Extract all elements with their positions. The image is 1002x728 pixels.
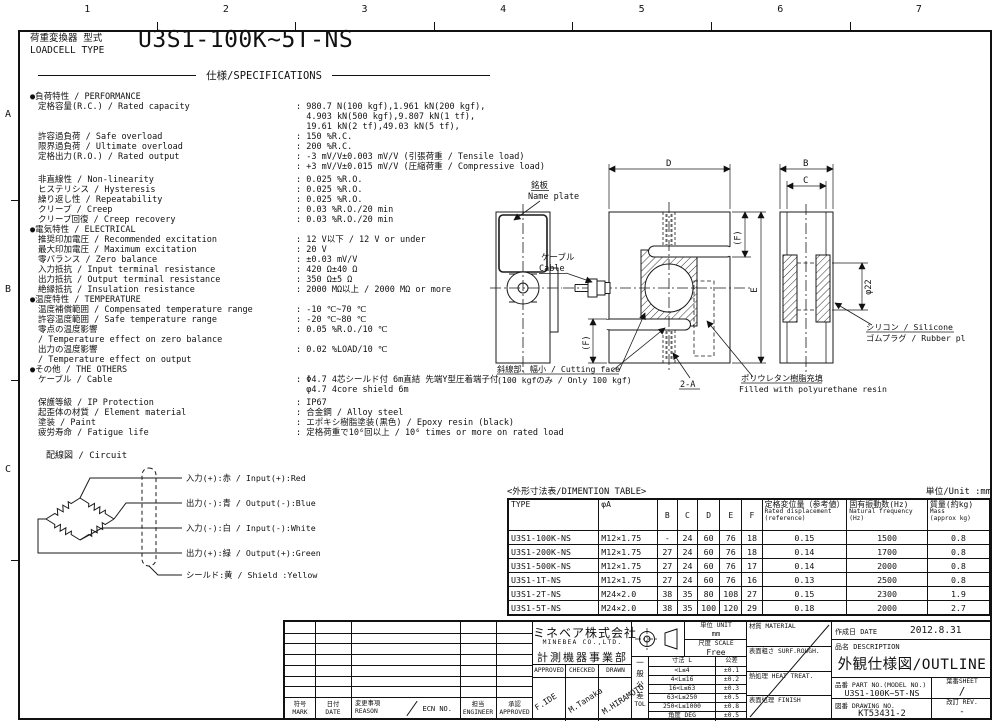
wire-output-plus: [38, 519, 182, 553]
date-row: 作成日 DATE 2012.8.31: [832, 622, 992, 640]
dim-table-cell: 0.8: [927, 545, 990, 559]
dim-table-row: U3S1-500K-NSM12×1.7527246076170.1420000.…: [508, 559, 990, 573]
specifications-heading: 仕様/SPECIFICATIONS: [38, 68, 490, 83]
dim-table-cell: 76: [720, 531, 742, 545]
spec-label: 保護等級 / IP Protection: [38, 398, 296, 408]
spec-row: 温度補償範囲 / Compensated temperature range: …: [30, 305, 502, 315]
revision-header-en: DATE: [325, 709, 340, 717]
revision-header-text: 変更事項REASON: [355, 700, 380, 716]
dim-table-header: D: [698, 499, 720, 531]
dim-table-cell: U3S1-5T-NS: [508, 601, 599, 616]
spec-label: 零バランス / Zero balance: [38, 255, 296, 265]
dim-label-f-bottom: (F): [582, 335, 592, 350]
tolerance-dim-range: 角度 DEG: [649, 712, 716, 721]
bridge-resistor: [46, 519, 80, 540]
cable-stub: [575, 279, 610, 297]
revision-header-cell: 変更事項REASONECN NO.: [351, 697, 460, 720]
material-block: 材質 MATERIAL表面粗さ SURF.ROUGH.熱処理 HEAT TREA…: [747, 622, 832, 720]
dim-table-cell: 60: [698, 573, 720, 587]
spec-label: 出力抵抗 / Output terminal resistance: [38, 275, 296, 285]
dim-table-cell: U3S1-1T-NS: [508, 573, 599, 587]
spec-row: / Temperature effect on zero balance: [30, 335, 502, 345]
spec-value: : IP67: [296, 398, 327, 408]
material-cell-label: 材質 MATERIAL: [749, 623, 796, 630]
spec-label: 許容温度範囲 / Safe temperature range: [38, 315, 296, 325]
cable-label-jp: ケーブル: [541, 252, 575, 263]
dim-table-cell: 27: [657, 559, 677, 573]
part-no-value: U3S1-100K~5T-NS: [832, 688, 932, 698]
spec-label: 温度補償範囲 / Compensated temperature range: [38, 305, 296, 315]
material-cell-label: 表面処理 FINISH: [749, 697, 801, 704]
cable-label-en: Cable: [539, 264, 565, 274]
bridge-resistor: [46, 498, 80, 519]
dim-table-cell: U3S1-500K-NS: [508, 559, 599, 573]
spec-row: ケーブル / Cable: Φ4.7 4芯シールド付 6m直結 先端Y型圧着端子…: [30, 375, 502, 385]
description-label: 品名 DESCRIPTION: [835, 642, 900, 652]
spec-row: 許容温度範囲 / Safe temperature range: -20 ℃~8…: [30, 315, 502, 325]
revision-header-jp: 承認: [508, 701, 521, 709]
dimension-table-caption: <外形寸法表/DIMENTION TABLE> 単位/Unit :mm: [507, 486, 991, 498]
cutting-face-note: (100 kgfのみ / Only 100 kgf): [497, 375, 632, 385]
material-cell: 熱処理 HEAT TREAT.: [747, 672, 832, 696]
ruler-tick: [572, 22, 573, 30]
spec-row: 疲労寿命 / Fatigue life: 定格荷重で10⁶回以上 / 10⁶ t…: [30, 428, 502, 438]
spec-label: ケーブル / Cable: [38, 375, 296, 385]
dim-table-row: U3S1-1T-NSM12×1.7527246076160.1325000.8: [508, 573, 990, 587]
dim-table-cell: 24: [677, 531, 697, 545]
spec-label: 推奨印加電圧 / Recommended excitation: [38, 235, 296, 245]
spec-row: 保護等級 / IP Protection: IP67: [30, 398, 502, 408]
signature-column: APPROVEDF.IDE: [533, 665, 566, 721]
drawing-no-cell: 図番 DRAWING NO. KT53431-2: [832, 699, 932, 720]
revision-header-text: 符号MARK: [285, 697, 315, 720]
dim-table-row: U3S1-100K-NSM12×1.75-246076180.1515000.8: [508, 531, 990, 545]
dim-table-cell: 0.14: [762, 545, 847, 559]
dim-table-cell: 1700: [847, 545, 928, 559]
spec-label: [38, 162, 296, 172]
revision-row-line: [285, 665, 533, 666]
ecn-label: ECN NO.: [422, 705, 452, 713]
spec-row: 塗装 / Paint: エポキシ樹脂塗装(黒色) / Epoxy resin (…: [30, 418, 502, 428]
dim-table-cell: U3S1-200K-NS: [508, 545, 599, 559]
revision-value: -: [932, 707, 992, 717]
cutting-face-label: 斜線部、幅小 / Cutting face: [497, 364, 620, 374]
rubber-plug-section-right: [816, 255, 830, 322]
wire-label: 出力(-):青 / Output(-):Blue: [186, 498, 316, 508]
specification-list: ●負荷特性 / PERFORMANCE定格容量(R.C.) / Rated ca…: [30, 92, 502, 438]
part-no-cell: 品番 PART NO.(MODEL NO.) U3S1-100K~5T-NS: [832, 678, 932, 699]
revision-row-line: [285, 643, 533, 644]
revision-header-cell: 担当ENGINEER: [460, 697, 496, 720]
third-angle-projection-icon: [632, 622, 685, 657]
dim-table-cell: 0.15: [762, 531, 847, 545]
model-number: U3S1-100K~5T-NS: [138, 27, 353, 53]
spec-value: : 12 V以下 / 12 V or under: [296, 235, 426, 245]
wire-label: 入力(-):白 / Input(-):White: [186, 523, 316, 533]
spec-row: 零点の温度影響: 0.05 %R.O./10 ℃: [30, 325, 502, 335]
revision-label: 改訂 REV.: [932, 699, 992, 707]
spec-label: 疲労寿命 / Fatigue life: [38, 428, 296, 438]
silicone-label-jp: シリコン / Silicone: [866, 322, 953, 332]
material-cell: 材質 MATERIAL: [747, 622, 832, 647]
unit-value: mm: [685, 630, 747, 639]
spec-label: 絶縁抵抗 / Insulation resistance: [38, 285, 296, 295]
revision-header-text: 承認APPROVED: [496, 697, 533, 720]
tolerance-side-char: 公: [632, 679, 648, 690]
tolerance-value: 公差: [716, 657, 747, 666]
revision-row-line: [285, 686, 533, 687]
signature-column: DRAWNM.HIRAMOTO: [599, 665, 632, 721]
dimension-table-unit: 単位/Unit :mm: [926, 486, 991, 498]
dim-table-cell: 2000: [847, 601, 928, 616]
tolerance-row: 寸法 L公差: [649, 657, 747, 666]
dim-table-header: B: [657, 499, 677, 531]
loadcell-type-label: 荷重変換器 型式 LOADCELL TYPE: [30, 33, 104, 57]
ruler-tick: [434, 22, 435, 30]
wire-label: シールド:黄 / Shield :Yellow: [186, 570, 317, 580]
dim-table-cell: -: [657, 531, 677, 545]
revision-header-cell: 日付DATE: [315, 697, 351, 720]
scale-label: 尺度 SCALE: [685, 640, 747, 648]
dim-table-cell: 0.8: [927, 531, 990, 545]
wire-label: 入力(+):赤 / Input(+):Red: [186, 473, 306, 483]
tolerance-side-char: 般: [632, 668, 648, 679]
dim-table-row: U3S1-200K-NSM12×1.7527246076180.1417000.…: [508, 545, 990, 559]
revision-row-line: [285, 654, 533, 655]
spec-label: 定格出力(R.O.) / Rated output: [38, 152, 296, 162]
unit-label: 単位 UNIT: [685, 622, 747, 630]
spec-value: : 420 Ω±40 Ω: [296, 265, 357, 275]
wire-label: 出力(+):緑 / Output(+):Green: [186, 548, 321, 558]
dim-table-cell: 35: [677, 587, 697, 601]
ruler-number: 3: [295, 2, 434, 18]
section-view: [780, 164, 868, 372]
bridge-resistor: [80, 498, 114, 519]
dim-table-header: 質量(約kg)Mass(approx kg): [927, 499, 990, 531]
dim-table-cell: 60: [698, 545, 720, 559]
side-view: [490, 204, 562, 372]
type-label-en: LOADCELL TYPE: [30, 45, 104, 57]
dim-label-d: D: [666, 159, 671, 169]
dim-table-header: C: [677, 499, 697, 531]
spec-row: : +3 mV/V±0.015 mV/V (圧縮荷重 / Compressive…: [30, 162, 502, 172]
dim-table-cell: M12×1.75: [599, 545, 657, 559]
revision-header-en: ENGINEER: [463, 709, 493, 717]
spec-row: φ4.7 4core shield 6m: [30, 385, 502, 395]
drawing-info-block: 作成日 DATE 2012.8.31 品名 DESCRIPTION 外観仕様図/…: [832, 622, 992, 720]
signature-name: F.IDE: [533, 692, 558, 713]
projection-symbol-cell: [632, 622, 685, 657]
spec-label: クリープ回復 / Creep recovery: [38, 215, 296, 225]
date-label: 作成日 DATE: [835, 627, 877, 637]
spec-label: ヒステリシス / Hysteresis: [38, 185, 296, 195]
dim-table-cell: 18: [742, 531, 762, 545]
revision-header-jp: 日付: [327, 701, 340, 709]
dim-table-cell: M12×1.75: [599, 531, 657, 545]
revision-row-line: [285, 633, 533, 634]
spec-row: 最大印加電圧 / Maximum excitation: 20 V: [30, 245, 502, 255]
ruler-number: 1: [18, 2, 157, 18]
dim-table-cell: 1.9: [927, 587, 990, 601]
revision-header-text: 担当ENGINEER: [460, 697, 496, 720]
dim-label-b: B: [803, 159, 808, 169]
front-view: [563, 164, 766, 373]
dim-table-cell: U3S1-100K-NS: [508, 531, 599, 545]
spec-row: 限界過負荷 / Ultimate overload: 200 %R.C.: [30, 142, 502, 152]
dim-table-cell: 0.15: [762, 587, 847, 601]
spec-row: 推奨印加電圧 / Recommended excitation: 12 V以下 …: [30, 235, 502, 245]
general-tolerance-side: 一般公差 TOL: [632, 657, 649, 720]
dim-label-dia22: φ22: [864, 279, 874, 294]
dim-table-cell: 76: [720, 559, 742, 573]
spec-row: クリープ / Creep: 0.03 %R.O./20 min: [30, 205, 502, 215]
spec-section-heading: ●温度特性 / TEMPERATURE: [30, 295, 502, 305]
spec-value: : 0.05 %R.O./10 ℃: [296, 325, 387, 335]
dim-table-cell: M24×2.0: [599, 587, 657, 601]
strain-gauge-bridge: [46, 498, 114, 540]
revision-row-line: [285, 676, 533, 677]
spec-value: : 0.02 %LOAD/10 ℃: [296, 345, 387, 355]
row-letter: C: [0, 463, 16, 477]
ecn-slash: [406, 701, 417, 716]
spec-row: 非直線性 / Non-linearity: 0.025 %R.O.: [30, 175, 502, 185]
spec-label: [38, 112, 296, 122]
outline-drawing: D B C (F) E (F) φ22 銘板 Name plate ケーブル C…: [488, 140, 966, 472]
row-tick: [11, 200, 19, 201]
dim-table-cell: 108: [720, 587, 742, 601]
ruler-number: 5: [572, 2, 711, 18]
spec-label: 起歪体の材質 / Element material: [38, 408, 296, 418]
spec-label: 限界過負荷 / Ultimate overload: [38, 142, 296, 152]
spec-section-heading: ●電気特性 / ELECTRICAL: [30, 225, 502, 235]
company-division: 計測機器事業部: [533, 649, 632, 665]
revision-header-text: 日付DATE: [315, 697, 351, 720]
dim-table-row: U3S1-2T-NSM24×2.0383580108270.1523001.9: [508, 587, 990, 601]
spec-label: / Temperature effect on zero balance: [38, 335, 296, 345]
revision-cell: 改訂 REV. -: [932, 699, 992, 720]
dim-table-cell: 2300: [847, 587, 928, 601]
nameplate-label-jp: 銘板: [531, 180, 549, 191]
revision-header-jp: 担当: [472, 701, 485, 709]
dimension-table-title: <外形寸法表/DIMENTION TABLE>: [507, 486, 646, 498]
spec-value: : 150 %R.C.: [296, 132, 352, 142]
spec-value: φ4.7 4core shield 6m: [296, 385, 409, 395]
dim-table-cell: M24×2.0: [599, 601, 657, 616]
revision-table: 符号MARK日付DATE変更事項REASONECN NO.担当ENGINEER承…: [285, 622, 533, 720]
ruler-number: 2: [157, 2, 296, 18]
projection-tolerance-block: 単位 UNIT mm 尺度 SCALE Free 一般公差 TOL 寸法 L公差…: [632, 622, 747, 720]
spec-row: 零バランス / Zero balance: ±0.03 mV/V: [30, 255, 502, 265]
type-label-jp: 荷重変換器 型式: [30, 33, 104, 45]
dim-table-cell: 76: [720, 573, 742, 587]
tolerance-side-char: 差: [632, 690, 648, 701]
tolerance-side-char: 一: [632, 657, 648, 668]
dim-table-row: U3S1-5T-NSM24×2.03835100120290.1820002.7: [508, 601, 990, 616]
dim-table-header: F: [742, 499, 762, 531]
company-name-en: MINEBEA CO.,LTD.: [533, 639, 632, 646]
spec-section-heading: ●その他 / THE OTHERS: [30, 365, 502, 375]
scale-cell: 尺度 SCALE Free: [685, 640, 747, 657]
dim-table-cell: 24: [677, 573, 697, 587]
spec-row: ヒステリシス / Hysteresis: 0.025 %R.O.: [30, 185, 502, 195]
dim-table-cell: 29: [742, 601, 762, 616]
spec-value: : ±0.03 mV/V: [296, 255, 357, 265]
dim-table-cell: 24: [677, 559, 697, 573]
sheet-value: /: [932, 686, 992, 697]
signature-area: APPROVEDF.IDECHECKEDM.TanakaDRAWNM.HIRAM…: [533, 664, 632, 721]
spec-label: 繰り返し性 / Repeatability: [38, 195, 296, 205]
spec-section-heading: ●負荷特性 / PERFORMANCE: [30, 92, 502, 102]
spec-row: 起歪体の材質 / Element material: 合金鋼 / Alloy s…: [30, 408, 502, 418]
signature-header: APPROVED: [533, 665, 565, 678]
spec-value: 4.903 kN(500 kgf),9.807 kN(1 tf),: [296, 112, 475, 122]
spec-value: : 0.03 %R.O./20 min: [296, 215, 393, 225]
spec-label: 最大印加電圧 / Maximum excitation: [38, 245, 296, 255]
dim-table-cell: 35: [677, 601, 697, 616]
dim-table-cell: 0.18: [762, 601, 847, 616]
dim-table-cell: 2000: [847, 559, 928, 573]
spec-row: 許容過負荷 / Safe overload: 150 %R.C.: [30, 132, 502, 142]
spec-value: : 20 V: [296, 245, 327, 255]
ruler-number: 6: [711, 2, 850, 18]
tolerance-table: 寸法 L公差<L≤4±0.14<L≤16±0.216<L≤63±0.363<L≤…: [649, 657, 747, 720]
spec-value: : エポキシ樹脂塗装(黒色) / Epoxy resin (black): [296, 418, 514, 428]
material-cell: 表面粗さ SURF.ROUGH.: [747, 647, 832, 672]
dim-table-cell: 80: [698, 587, 720, 601]
dim-table-header: E: [720, 499, 742, 531]
dim-table-header: 固有振動数(Hz)Natural frequency(Hz): [847, 499, 928, 531]
scale-value: Free: [685, 648, 747, 657]
thread-label: 2-A: [680, 380, 695, 390]
spec-label: 塗装 / Paint: [38, 418, 296, 428]
dim-table-cell: 27: [657, 573, 677, 587]
spec-value: : -10 ℃~70 ℃: [296, 305, 366, 315]
ruler-tick: [711, 22, 712, 30]
tolerance-row: 角度 DEG±0.5: [649, 711, 747, 721]
row-letter: B: [0, 283, 16, 297]
wire-input-plus: [80, 478, 182, 498]
description-value: 外観仕様図/OUTLINE: [832, 653, 992, 674]
dim-table-cell: 24: [677, 545, 697, 559]
spec-label: 零点の温度影響: [38, 325, 296, 335]
row-tick: [11, 560, 19, 561]
spec-value: : 980.7 N(100 kgf),1.961 kN(200 kgf),: [296, 102, 485, 112]
spec-value: : 200 %R.C.: [296, 142, 352, 152]
silicone-label-en: ゴムプラグ / Rubber plug: [866, 333, 966, 343]
spec-value: : 0.025 %R.O.: [296, 195, 363, 205]
dim-label-f-top: (F): [734, 230, 744, 245]
spec-row: 4.903 kN(500 kgf),9.807 kN(1 tf),: [30, 112, 502, 122]
dim-table-cell: 0.13: [762, 573, 847, 587]
spec-row: 出力の温度影響: 0.02 %LOAD/10 ℃: [30, 345, 502, 355]
wire-input-minus: [80, 528, 182, 540]
dim-table-cell: 0.8: [927, 573, 990, 587]
spec-row: 19.61 kN(2 tf),49.03 kN(5 tf),: [30, 122, 502, 132]
dim-table-cell: U3S1-2T-NS: [508, 587, 599, 601]
spec-row: クリープ回復 / Creep recovery: 0.03 %R.O./20 m…: [30, 215, 502, 225]
company-block: ミネベア株式会社 MINEBEA CO.,LTD. 計測機器事業部 APPROV…: [533, 622, 632, 720]
dim-table-cell: 100: [698, 601, 720, 616]
dim-table-cell: 27: [742, 587, 762, 601]
dim-label-e: E: [750, 287, 760, 292]
signature-header: DRAWN: [599, 665, 632, 678]
drawing-no-value: KT53431-2: [832, 709, 932, 719]
row-letter: A: [0, 108, 16, 122]
wire-shield: [149, 566, 182, 575]
dim-table-cell: 120: [720, 601, 742, 616]
dimension-table-block: <外形寸法表/DIMENTION TABLE> 単位/Unit :mm TYPE…: [507, 486, 991, 616]
dim-table-cell: 0.14: [762, 559, 847, 573]
dim-table-cell: 60: [698, 531, 720, 545]
spec-label: [38, 122, 296, 132]
cable-sheath-outline: [142, 468, 156, 566]
spec-value: : Φ4.7 4芯シールド付 6m直結 先端Y型圧着端子付: [296, 375, 499, 385]
spec-value: 19.61 kN(2 tf),49.03 kN(5 tf),: [296, 122, 460, 132]
drawing-sheet: 1234567 ABC 荷重変換器 型式 LOADCELL TYPE U3S1-…: [0, 0, 1002, 728]
spec-row: 絶縁抵抗 / Insulation resistance: 2000 MΩ以上 …: [30, 285, 502, 295]
dim-table-cell: M12×1.75: [599, 559, 657, 573]
dim-table-cell: 16: [742, 573, 762, 587]
dim-table-cell: 17: [742, 559, 762, 573]
dim-table-header: TYPE: [508, 499, 599, 531]
dim-table-cell: 2.7: [927, 601, 990, 616]
signature-header: CHECKED: [566, 665, 598, 678]
resin-label-jp: ポリウレタン樹脂充填: [741, 373, 823, 383]
spec-row: 定格出力(R.O.) / Rated output: -3 mV/V±0.003…: [30, 152, 502, 162]
spec-label: / Temperature effect on output: [38, 355, 296, 365]
dim-table-cell: 76: [720, 545, 742, 559]
wire-output-minus: [114, 503, 182, 519]
dim-table-cell: 38: [657, 587, 677, 601]
spec-value: : 合金鋼 / Alloy steel: [296, 408, 403, 418]
revision-header-en: MARK: [292, 709, 307, 717]
spec-value: : 0.025 %R.O.: [296, 185, 363, 195]
dim-table-cell: 60: [698, 559, 720, 573]
spec-label: 入力抵抗 / Input terminal resistance: [38, 265, 296, 275]
revision-header-cell: 承認APPROVED: [496, 697, 533, 720]
spec-label: 非直線性 / Non-linearity: [38, 175, 296, 185]
spec-value: : 0.025 %R.O.: [296, 175, 363, 185]
revision-header-jp: 変更事項: [355, 700, 380, 708]
ruler-tick: [850, 22, 851, 30]
spec-label: クリープ / Creep: [38, 205, 296, 215]
spec-value: : 2000 MΩ以上 / 2000 MΩ or more: [296, 285, 451, 295]
sheet-cell: 葉番SHEET /: [932, 678, 992, 699]
dim-table-header: φA: [599, 499, 657, 531]
tolerance-value: ±0.5: [716, 712, 747, 721]
bridge-resistor: [80, 519, 114, 540]
material-cell-label: 表面粗さ SURF.ROUGH.: [749, 648, 820, 655]
date-value: 2012.8.31: [910, 625, 961, 636]
revision-header-cell: 符号MARK: [285, 697, 315, 720]
spec-row: 出力抵抗 / Output terminal resistance: 350 Ω…: [30, 275, 502, 285]
dim-table-header: 定格変位量（参考値）Rated displacement(reference): [762, 499, 847, 531]
revision-header-en: APPROVED: [499, 709, 529, 717]
circuit-title: 配線図 / Circuit: [46, 448, 127, 461]
ruler-number: 4: [434, 2, 573, 18]
ruler-number: 7: [850, 2, 989, 18]
dimension-table: TYPEφABCDEF定格変位量（参考値）Rated displacement(…: [507, 498, 991, 616]
spec-label: 定格容量(R.C.) / Rated capacity: [38, 102, 296, 112]
resin-label-en: Filled with polyurethane resin: [739, 384, 887, 394]
spec-value: : 0.03 %R.O./20 min: [296, 205, 393, 215]
rubber-plug-section-left: [783, 255, 797, 322]
spec-row: / Temperature effect on output: [30, 355, 502, 365]
spec-row: 入力抵抗 / Input terminal resistance: 420 Ω±…: [30, 265, 502, 275]
material-cell: 表面処理 FINISH: [747, 696, 832, 720]
tolerance-side-en: TOL: [632, 701, 648, 708]
specifications-title: 仕様/SPECIFICATIONS: [196, 68, 332, 83]
